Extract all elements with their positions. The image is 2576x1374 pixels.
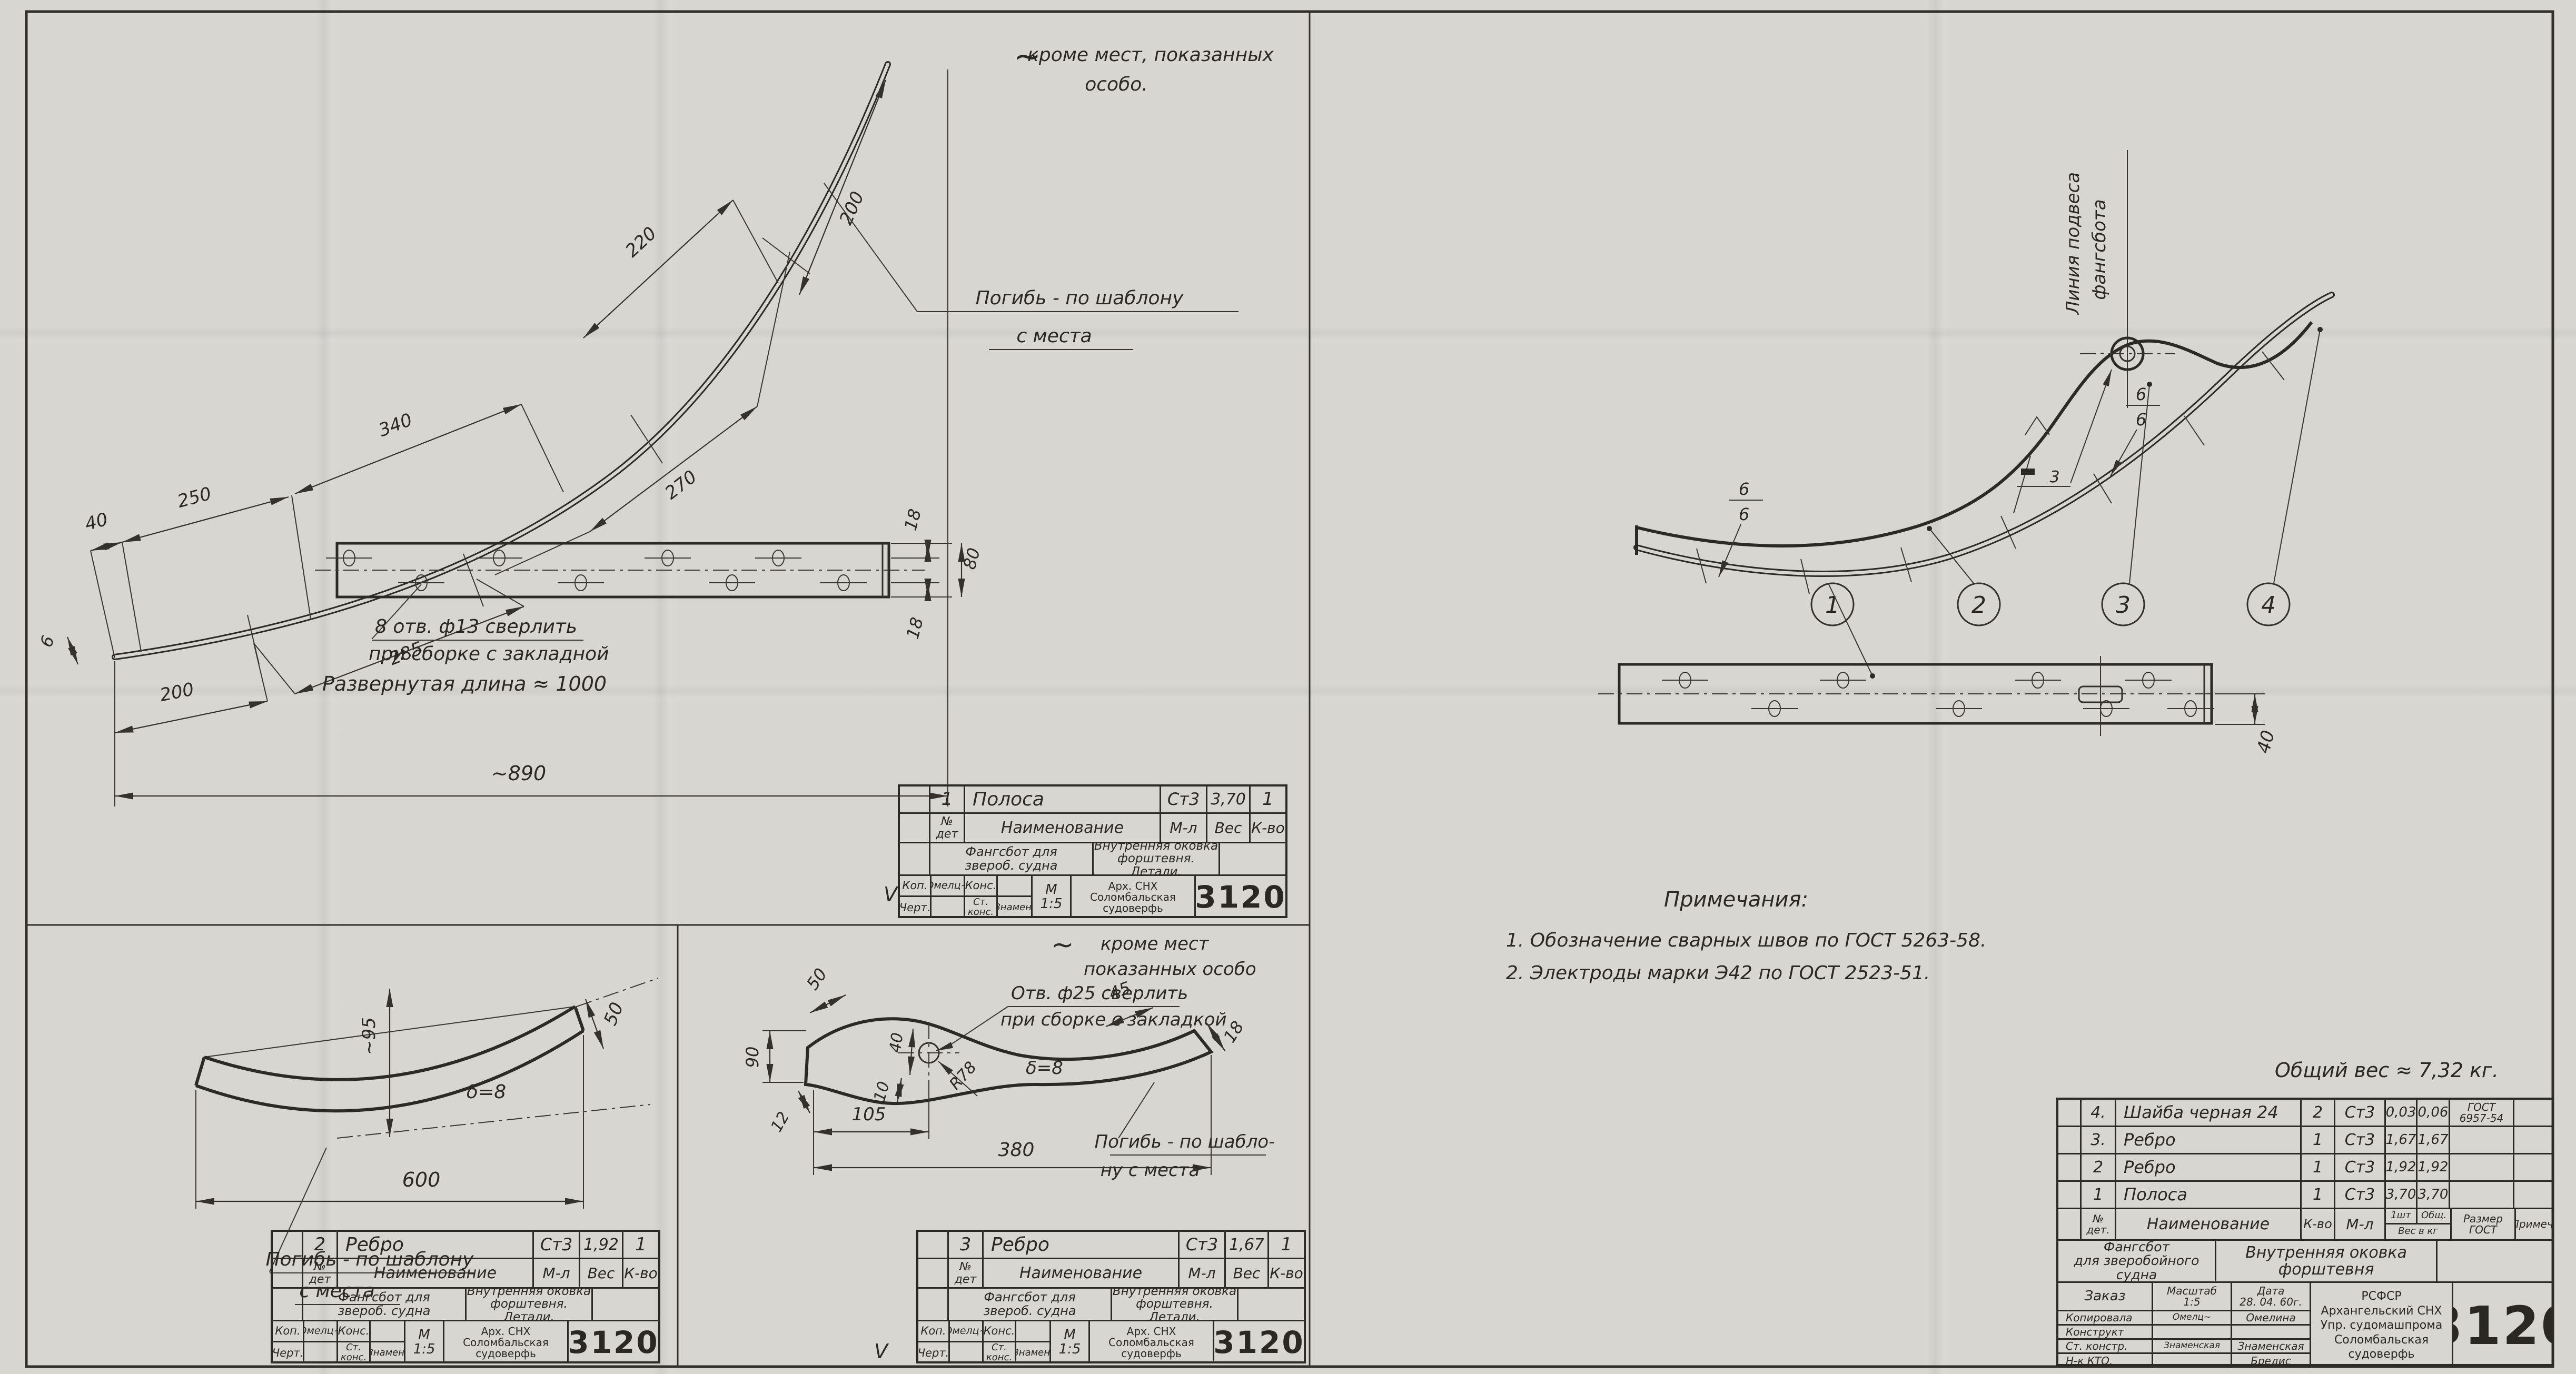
sheet-number-main: 3120 — [2453, 1283, 2552, 1368]
dim-10: 10 — [870, 1080, 894, 1104]
remarks-title: Примечания: — [1664, 888, 1808, 912]
det-weight: 1,92 — [580, 1232, 623, 1258]
table-row: 3. Ребро 1 Ст3 1,67 1,67 — [2058, 1127, 2552, 1154]
organization: РСФСРАрхангельский СНХУпр. судомашпрома … — [2311, 1283, 2453, 1368]
note-hole25-1: Отв. ф25 сверлить — [1011, 983, 1188, 1004]
det-weight: 3,70 — [1207, 786, 1251, 812]
dim-6: 6 — [36, 633, 58, 650]
dim-12: 12 — [767, 1109, 793, 1136]
det-qty: 1 — [1269, 1232, 1304, 1258]
dim-50-c: 50 — [802, 964, 831, 993]
dim-delta8-b: δ=8 — [467, 1081, 506, 1103]
note-holes8-1: 8 отв. ф13 сверлить — [375, 616, 577, 638]
det-name: Полоса — [965, 786, 1161, 812]
assembly-ribs-outline — [1637, 322, 2312, 546]
table-row: 2 Ребро 1 Ст3 1,92 1,92 — [2058, 1154, 2552, 1182]
balloon-4: 4 — [2247, 327, 2323, 625]
table-row: 4. Шайба черная 24 2 Ст3 0,03 0,06 ГОСТ6… — [2058, 1100, 2552, 1127]
note-pogib-c-2: ну с места — [1101, 1160, 1200, 1181]
note-developed-length: Развернутая длина ≈ 1000 — [322, 672, 607, 695]
dim-270: 270 — [661, 466, 701, 504]
note-suspension-2: фангсбота — [2089, 199, 2110, 300]
dim-105: 105 — [852, 1104, 886, 1125]
assembly-plan-view: 40 — [1598, 656, 2279, 755]
dim-340: 340 — [376, 409, 415, 441]
dim-90: 90 — [742, 1047, 762, 1068]
remarks-item-1: 1. Обозначение сварных швов по ГОСТ 5263… — [1506, 930, 1986, 951]
det-name: Ребро — [338, 1232, 534, 1258]
note-pogib-a-2: с места — [1016, 325, 1092, 347]
dim-80: 80 — [959, 546, 984, 572]
dim-40-c: 40 — [886, 1031, 907, 1054]
note-suspension-1: Линия подвеса — [2063, 172, 2084, 315]
note-pogib-a-1: Погибь - по шаблону — [976, 287, 1184, 309]
remarks-item-2: 2. Электроды марки Э42 по ГОСТ 2523-51. — [1506, 962, 1930, 984]
det-name: Ребро — [984, 1232, 1180, 1258]
note-hole25-2: при сборке с закладкой — [1000, 1009, 1226, 1030]
weld-6-right-num: 6 — [2136, 384, 2146, 404]
rebro3-outline — [806, 1019, 1211, 1103]
polosa-curve — [115, 64, 888, 657]
weld-flag-3: 3 — [2049, 468, 2059, 486]
checkmark-c: V — [874, 1340, 889, 1363]
det-no: 1 — [930, 786, 965, 812]
note-extra-mid-1: кроме мест — [1101, 933, 1210, 954]
dim-600: 600 — [402, 1168, 441, 1191]
svg-text:3: 3 — [2116, 592, 2131, 619]
drawing-sheet: ~ кроме мест, показанных особо. — [0, 0, 2576, 1374]
note-holes8-2: при сборке с закладной — [369, 643, 609, 665]
sheet-number: 3120 — [569, 1321, 658, 1363]
det-qty: 1 — [623, 1232, 658, 1258]
det-mat: Ст3 — [1180, 1232, 1226, 1258]
det-no: 2 — [303, 1232, 338, 1258]
weld-6-left-num: 6 — [1739, 479, 1749, 499]
note-extra-top-1: кроме мест, показанных — [1027, 44, 1274, 66]
dim-380: 380 — [998, 1139, 1035, 1161]
dim-40-plan: 40 — [2253, 728, 2279, 755]
dim-200-bottom: 200 — [158, 679, 195, 706]
det-qty: 1 — [1251, 786, 1285, 812]
assembly-strip — [1637, 295, 2332, 574]
det-weight: 1,67 — [1226, 1232, 1269, 1258]
det-mat: Ст3 — [534, 1232, 580, 1258]
table-row: 1 Полоса 1 Ст3 3,70 3,70 — [2058, 1182, 2552, 1209]
dim-95: ~95 — [359, 1017, 380, 1055]
panel-polosa: ~ кроме мест, показанных особо. — [36, 37, 1274, 906]
parts-table-and-titleblock: 4. Шайба черная 24 2 Ст3 0,03 0,06 ГОСТ6… — [2056, 1098, 2554, 1366]
titleblock-rebro2: 2 Ребро Ст3 1,92 1 №дет Наименование М-л… — [271, 1230, 660, 1363]
dim-890: ~890 — [491, 762, 546, 785]
svg-text:2: 2 — [1971, 592, 1986, 619]
dim-18-top: 18 — [900, 507, 925, 533]
titleblock-rebro3: 3 Ребро Ст3 1,67 1 №дет Наименование М-л… — [916, 1230, 1306, 1363]
dim-18-bottom: 18 — [903, 615, 927, 641]
det-mat: Ст3 — [1161, 786, 1207, 812]
sheet-number: 3120 — [1214, 1321, 1304, 1363]
checkmark-a: V — [884, 883, 899, 906]
drawing-title: Внутренняя оковкафорштевня — [2216, 1241, 2438, 1281]
dim-220: 220 — [621, 223, 661, 262]
panel-assembly: Линия подвеса фангсбота 6 6 6 6 — [1506, 150, 2499, 1082]
svg-text:4: 4 — [2261, 592, 2276, 619]
note-extra-top-2: особо. — [1085, 74, 1148, 95]
project-name: Фангсботдля зверобойногосудна — [2058, 1241, 2216, 1281]
dim-250: 250 — [175, 483, 214, 512]
table-header: №дет. Наименование К-во М-л 1шт Общ. Вес… — [2058, 1209, 2552, 1241]
svg-text:1: 1 — [1825, 592, 1840, 619]
dim-delta8-c: δ=8 — [1026, 1058, 1063, 1079]
note-pogib-c-1: Погибь - по шабло- — [1095, 1131, 1275, 1152]
dim-r78: R78 — [946, 1058, 980, 1093]
det-no: 3 — [949, 1232, 984, 1258]
dim-40: 40 — [83, 509, 110, 535]
note-extra-mid-2: показанных особо — [1084, 959, 1256, 980]
weld-6-left-den: 6 — [1739, 504, 1749, 524]
titleblock-polosa: 1 Полоса Ст3 3,70 1 №дет Наименование М-… — [898, 784, 1287, 918]
sheet-number: 3120 — [1196, 876, 1285, 918]
note-extra-mid-tilde: ~ — [1051, 929, 1074, 961]
dim-50-b: 50 — [600, 999, 628, 1028]
total-weight: Общий вес ≈ 7,32 кг. — [2275, 1059, 2499, 1082]
